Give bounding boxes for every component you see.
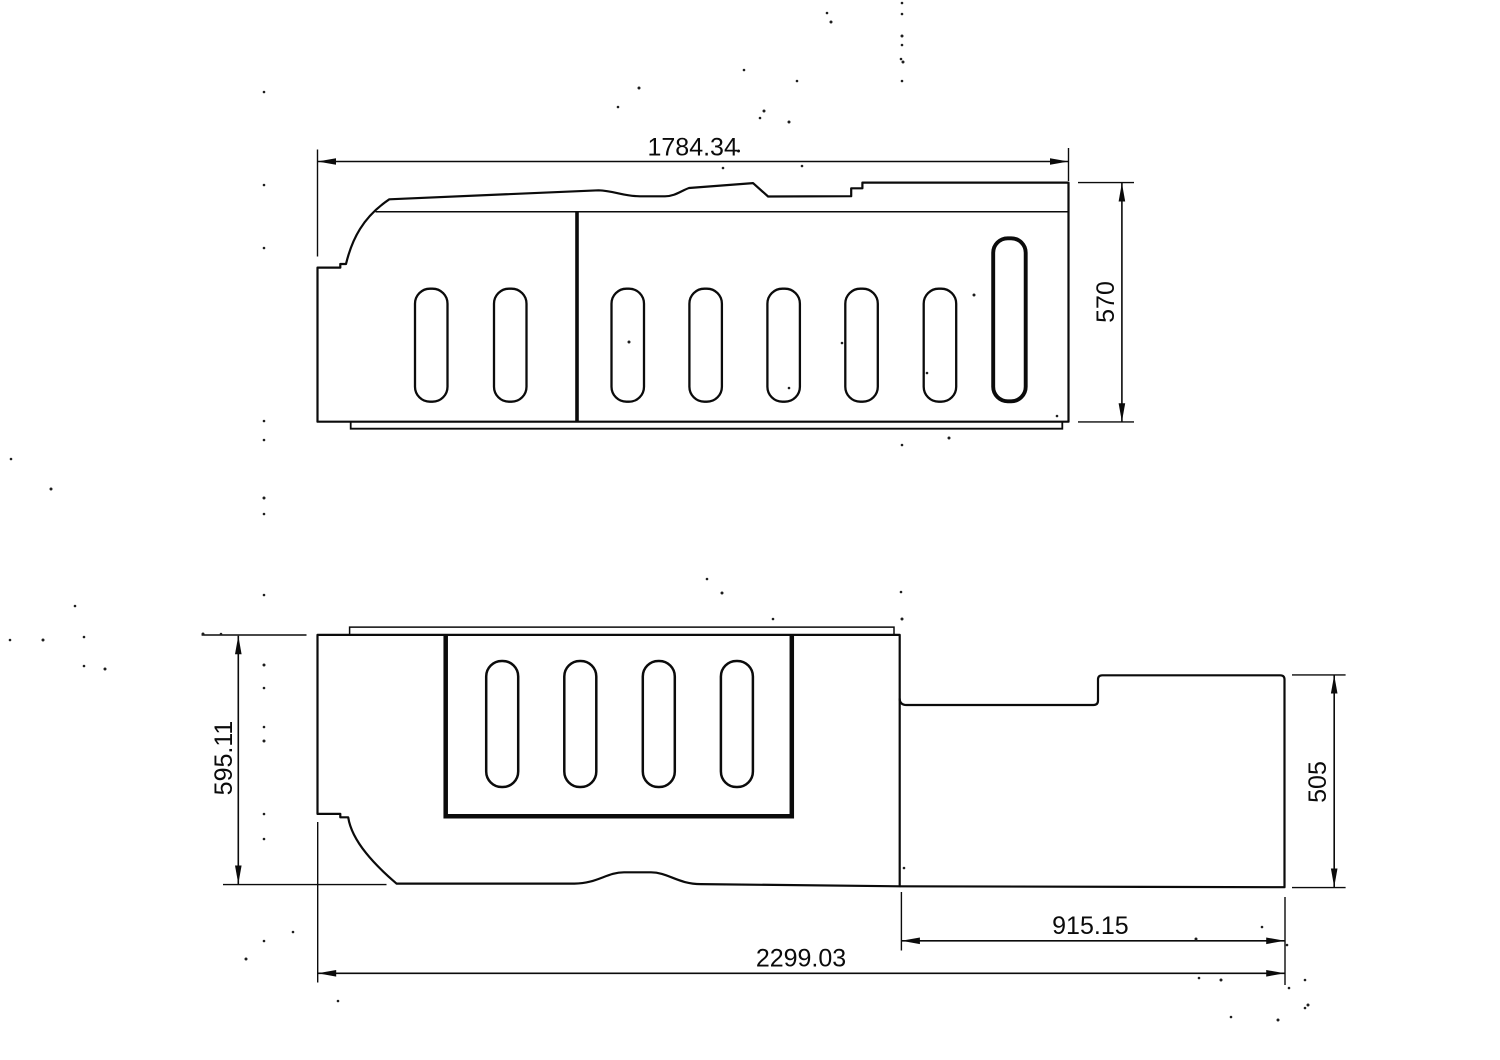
svg-text:915.15: 915.15	[1052, 912, 1128, 940]
svg-text:505: 505	[1304, 761, 1332, 803]
svg-text:595.11: 595.11	[210, 721, 238, 796]
svg-text:1784.34: 1784.34	[648, 134, 738, 162]
svg-text:2299.03: 2299.03	[756, 944, 846, 972]
svg-text:570: 570	[1092, 281, 1120, 323]
